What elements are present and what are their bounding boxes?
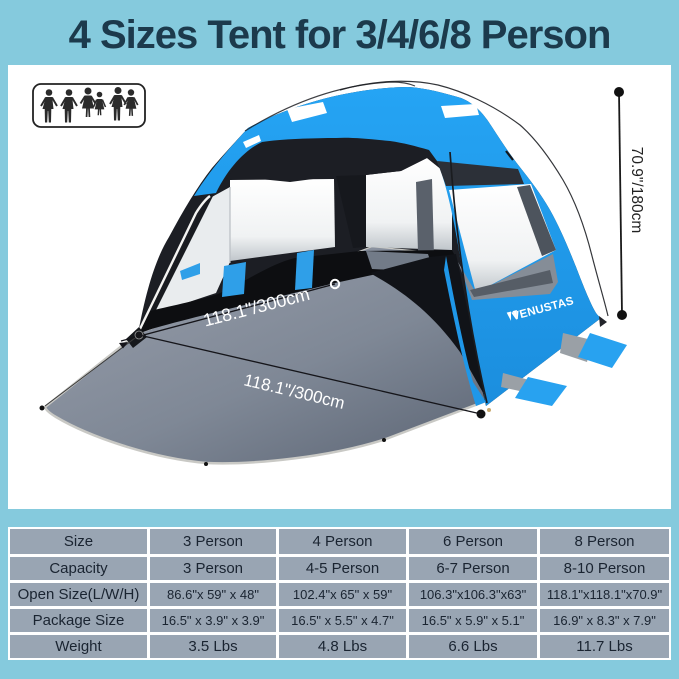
svg-text:70.9"/180cm: 70.9"/180cm bbox=[628, 147, 645, 234]
